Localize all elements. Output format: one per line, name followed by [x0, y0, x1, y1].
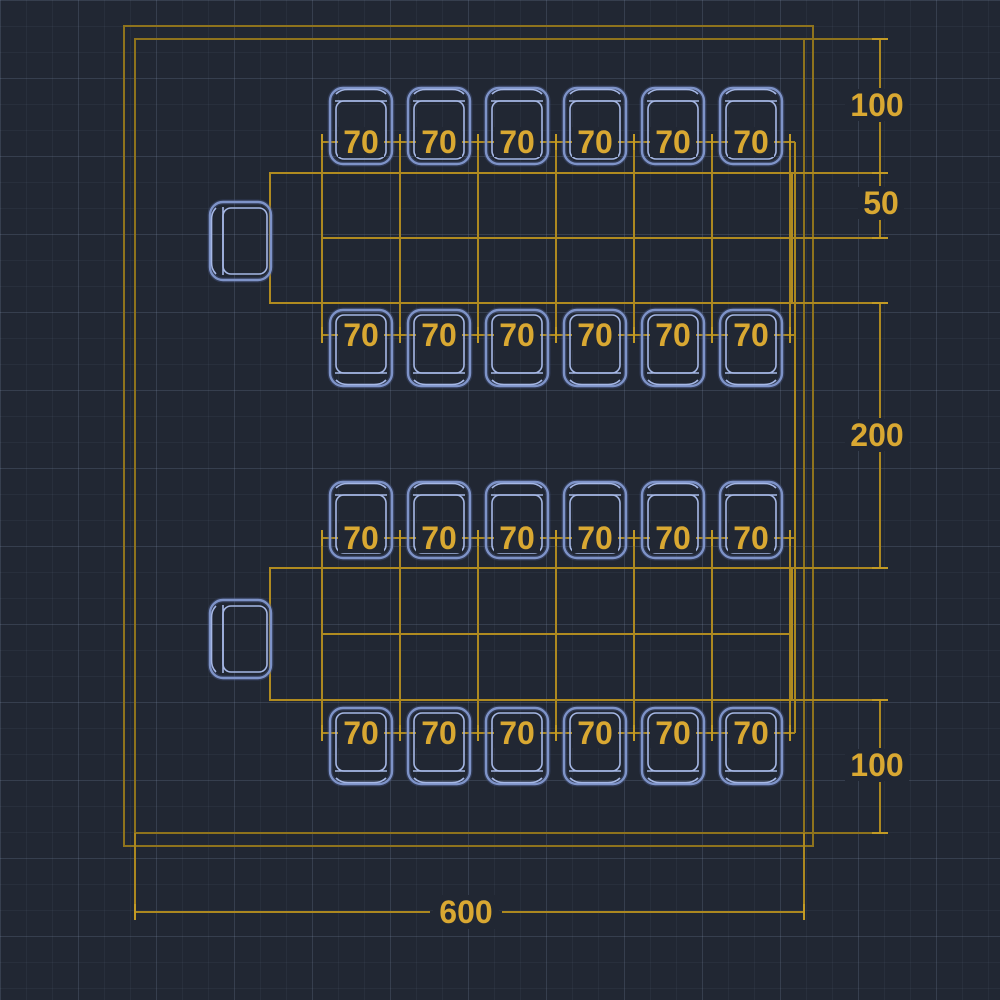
dim-label-table-gap: 200 — [850, 417, 903, 453]
seat-dim-label: 70 — [343, 715, 379, 751]
seat-dim-label: 70 — [421, 317, 457, 353]
seat-dim-label: 70 — [733, 317, 769, 353]
seat-dim-label: 70 — [733, 520, 769, 556]
tables[interactable] — [270, 173, 792, 700]
table-2-end-chair[interactable] — [210, 600, 271, 678]
seat-dim-label: 70 — [499, 124, 535, 160]
seat-dim-label: 70 — [499, 520, 535, 556]
cad-drawing: 7070707070707070707070707070707070707070… — [0, 0, 1000, 1000]
dim-label-top-margin: 100 — [850, 87, 903, 123]
seat-dim-label: 70 — [343, 317, 379, 353]
seat-dim-label: 70 — [655, 317, 691, 353]
seat-dim-label: 70 — [499, 317, 535, 353]
seat-dim-label: 70 — [421, 715, 457, 751]
seat-dim-label: 70 — [733, 715, 769, 751]
seat-dim-label: 70 — [655, 124, 691, 160]
seat-dim-label: 70 — [499, 715, 535, 751]
seat-dim-label: 70 — [577, 520, 613, 556]
seat-dim-label: 70 — [343, 124, 379, 160]
table-1[interactable] — [270, 173, 792, 303]
dim-label-overall-width: 600 — [439, 894, 492, 930]
seat-dim-label: 70 — [655, 715, 691, 751]
dim-label-table-depth: 50 — [863, 185, 899, 221]
seat-dim-label: 70 — [421, 124, 457, 160]
seat-dim-label: 70 — [577, 715, 613, 751]
table-1-end-chair[interactable] — [210, 202, 271, 280]
seat-dim-label: 70 — [577, 317, 613, 353]
dim-label-bottom-margin: 100 — [850, 747, 903, 783]
cad-canvas: 7070707070707070707070707070707070707070… — [0, 0, 1000, 1000]
seat-dim-label: 70 — [577, 124, 613, 160]
seat-dim-label: 70 — [733, 124, 769, 160]
seat-dim-label: 70 — [421, 520, 457, 556]
seat-dim-label: 70 — [343, 520, 379, 556]
seat-dim-label: 70 — [655, 520, 691, 556]
table-2[interactable] — [270, 568, 792, 700]
chairs[interactable] — [210, 88, 782, 784]
